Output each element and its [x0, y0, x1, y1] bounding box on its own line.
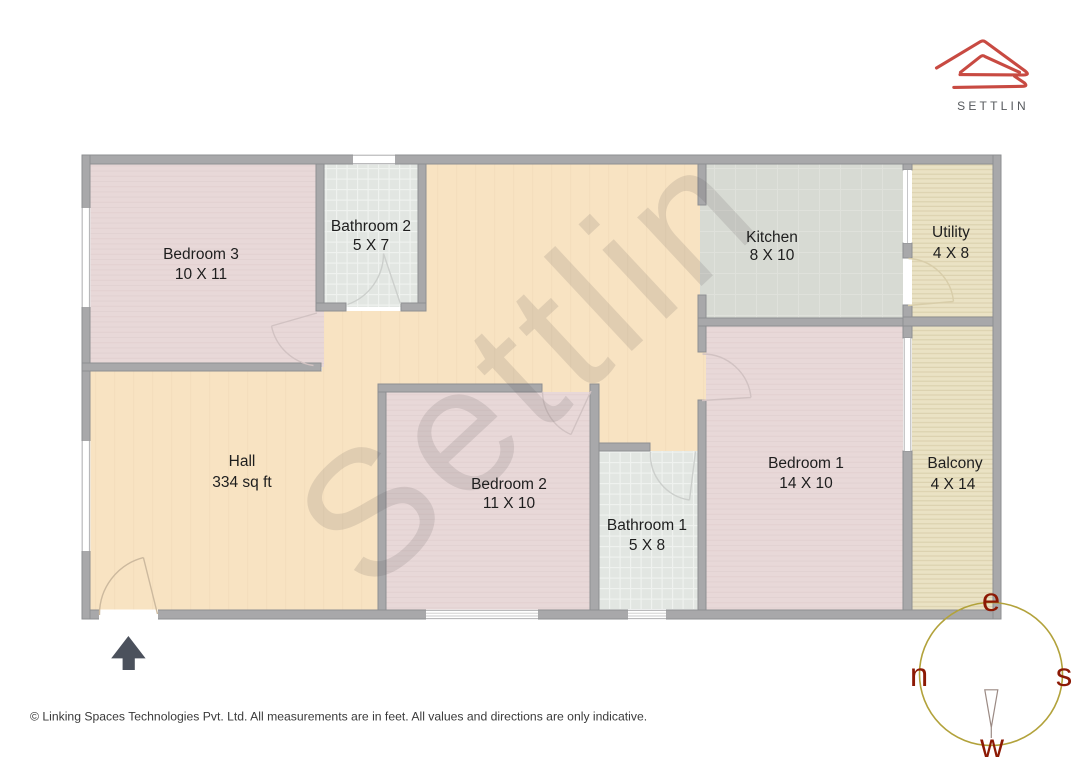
svg-text:© Linking Spaces Technologies: © Linking Spaces Technologies Pvt. Ltd. … [30, 710, 647, 724]
svg-text:Bedroom 1: Bedroom 1 [768, 455, 844, 472]
svg-text:11 X 10: 11 X 10 [483, 495, 536, 512]
svg-text:Balcony: Balcony [927, 455, 982, 472]
svg-text:s: s [1056, 656, 1073, 693]
svg-text:Bathroom 1: Bathroom 1 [607, 517, 687, 534]
svg-text:4 X 14: 4 X 14 [931, 476, 976, 493]
svg-text:4 X 8: 4 X 8 [933, 245, 969, 262]
svg-text:334 sq ft: 334 sq ft [212, 474, 272, 491]
svg-text:e: e [982, 581, 1000, 618]
svg-text:SETTLIN: SETTLIN [957, 99, 1029, 113]
svg-text:10 X 11: 10 X 11 [175, 266, 227, 283]
svg-text:Bedroom 2: Bedroom 2 [471, 476, 547, 493]
svg-text:5 X 7: 5 X 7 [353, 237, 389, 254]
svg-text:Bathroom 2: Bathroom 2 [331, 218, 411, 235]
svg-text:8 X 10: 8 X 10 [750, 247, 795, 264]
svg-text:w: w [979, 727, 1004, 764]
svg-text:n: n [910, 656, 928, 693]
svg-text:5 X 8: 5 X 8 [629, 537, 665, 554]
svg-text:14 X 10: 14 X 10 [779, 475, 833, 492]
svg-text:Utility: Utility [932, 224, 970, 241]
svg-text:Hall: Hall [229, 453, 256, 470]
svg-text:Kitchen: Kitchen [746, 229, 798, 246]
svg-text:Bedroom 3: Bedroom 3 [163, 246, 239, 263]
